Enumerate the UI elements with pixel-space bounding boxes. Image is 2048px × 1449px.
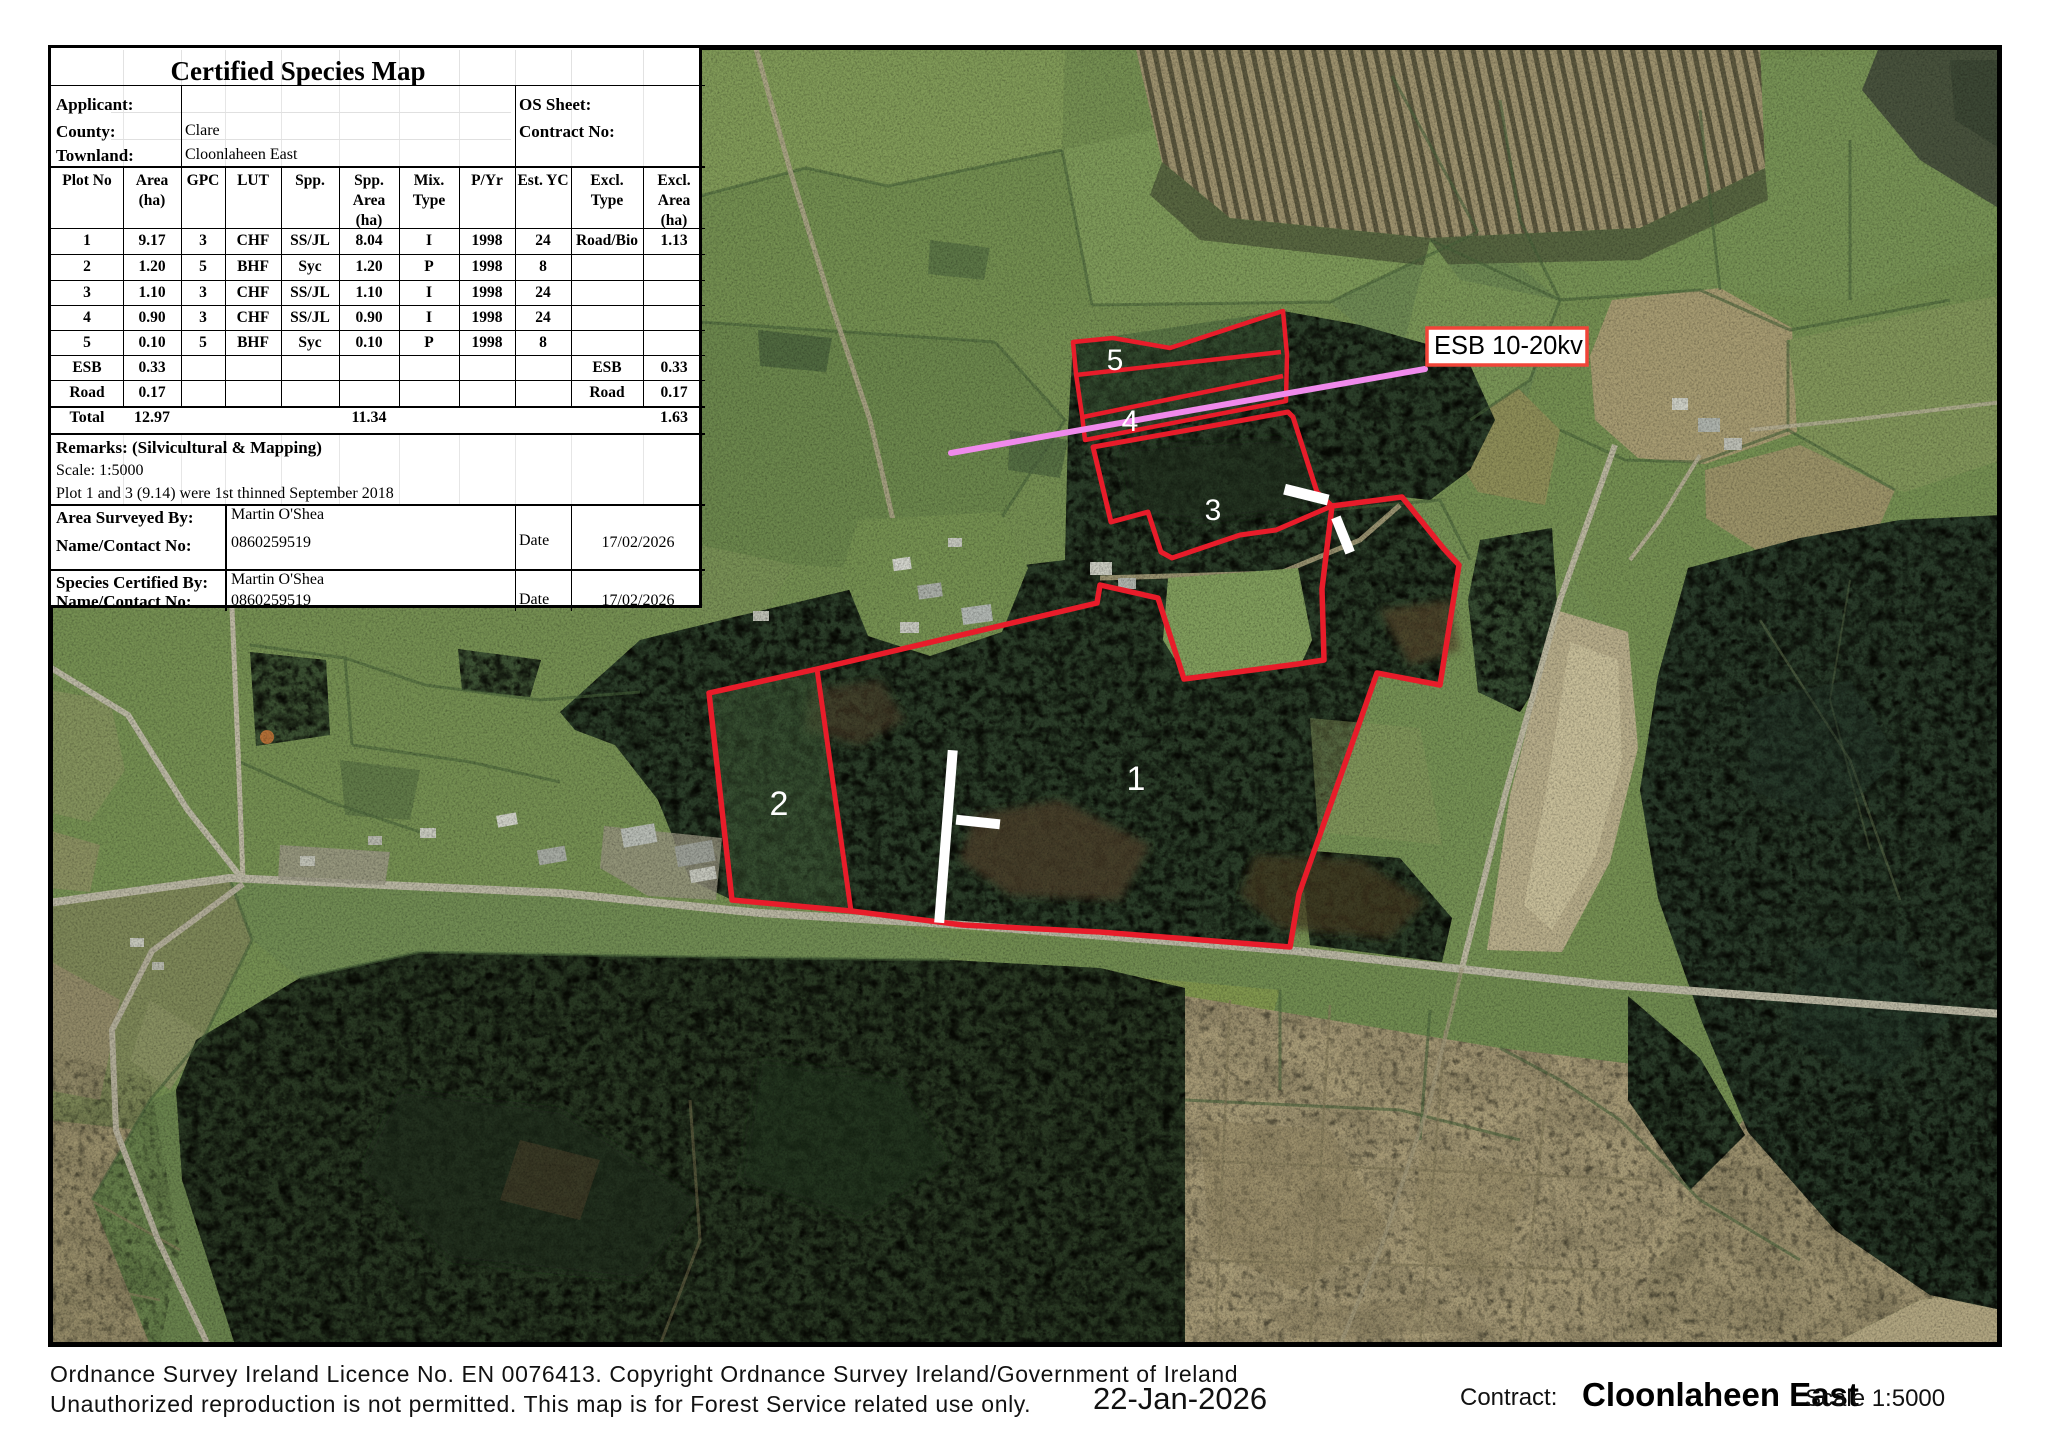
svg-text:5: 5 — [1107, 344, 1124, 377]
svg-text:1: 1 — [1127, 760, 1146, 798]
svg-text:3: 3 — [1205, 494, 1222, 527]
svg-text:2: 2 — [770, 785, 789, 823]
svg-text:ESB 10-20kv: ESB 10-20kv — [1434, 332, 1583, 360]
svg-text:4: 4 — [1122, 405, 1139, 438]
